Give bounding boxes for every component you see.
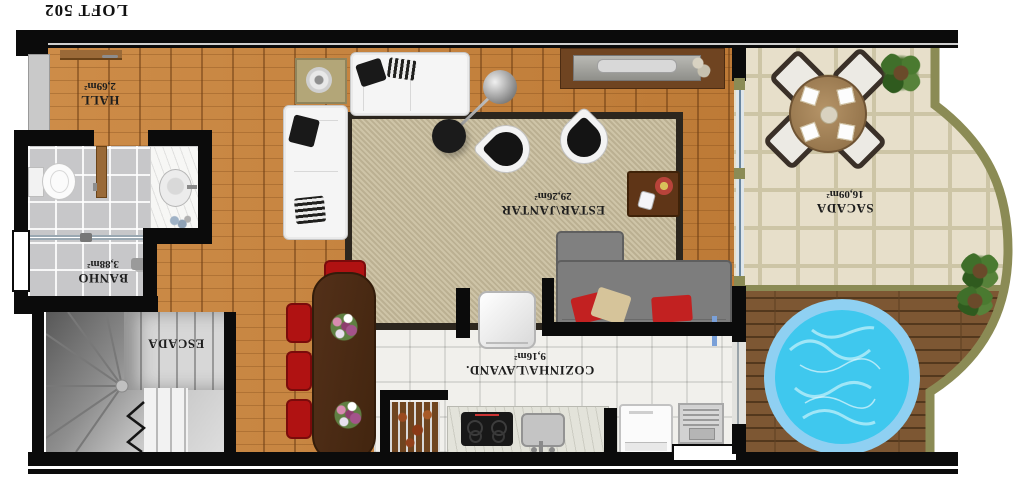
- balcony-round-table: [789, 75, 867, 153]
- stairs-break-line: [128, 402, 144, 452]
- kitchen-wall-stub: [604, 408, 617, 454]
- potted-plant: [960, 252, 1000, 290]
- room-label-hall: HALL 2,69m²: [58, 80, 142, 107]
- shower-glass-handle: [80, 233, 92, 242]
- balcony-wall-stub-bottom: [732, 424, 746, 454]
- entry-door-handle-icon: [102, 55, 118, 58]
- faucet-icon: [187, 185, 197, 189]
- bathroom-wall-top-a: [14, 130, 94, 146]
- jacuzzi-pool: [764, 299, 920, 455]
- dining-chair: [286, 303, 312, 343]
- outer-wall-bottom: [28, 452, 958, 474]
- bathroom-vanity: [150, 146, 200, 234]
- door-frame-post: [734, 168, 745, 179]
- sideboard: [560, 48, 725, 89]
- decor-cup: [637, 190, 656, 210]
- louvered-appliance: [678, 403, 724, 444]
- sliding-glass-door: [736, 81, 744, 286]
- dining-table: [312, 272, 376, 462]
- stairs-winder-lines: [46, 312, 122, 452]
- flower-centerpiece: [331, 398, 365, 432]
- window-left: [12, 230, 30, 292]
- toilet-bowl: [42, 163, 76, 200]
- deck-door-opening: [732, 342, 746, 424]
- room-label-sacada: SACADA 16,09m²: [792, 188, 898, 215]
- outer-wall-left-lower: [32, 310, 44, 452]
- plan-title: LOFT 502: [30, 0, 142, 20]
- grill-wall: [380, 394, 390, 454]
- staircase: [46, 312, 234, 452]
- washing-machine: [619, 404, 673, 457]
- kitchen-wall-stub-left: [456, 288, 470, 338]
- striped-pillow: [387, 57, 418, 81]
- room-label-banho: BANHO 3,88m²: [60, 258, 146, 285]
- grill: [390, 402, 440, 453]
- refrigerator: [478, 291, 536, 349]
- potted-plant: [956, 286, 994, 316]
- flower-centerpiece: [327, 310, 361, 344]
- door-frame-post: [734, 78, 745, 90]
- balcony-wall-stub-mid: [732, 286, 746, 342]
- grill-wall: [380, 390, 448, 400]
- alcove-wall-bottom: [542, 322, 744, 336]
- striped-pillow: [294, 196, 327, 225]
- dining-chair: [286, 351, 312, 391]
- kitchen-sink: [521, 413, 565, 447]
- outer-wall-topleft-stub: [16, 30, 48, 56]
- window-kitchen: [672, 444, 738, 462]
- room-label-escada: ESCADA: [138, 336, 214, 351]
- bathroom-wall-right: [198, 143, 212, 238]
- dining-chair: [286, 399, 312, 439]
- balcony-wall-stub-top: [732, 47, 746, 81]
- stairs-newel: [116, 380, 128, 392]
- cooktop: [461, 412, 513, 446]
- room-label-estar: ESTAR\JANTAR 29,26m²: [470, 190, 636, 217]
- decor-bowl: [306, 67, 332, 93]
- potted-plant: [879, 51, 923, 95]
- bathroom-door: [96, 146, 107, 198]
- floor-plan: LOFT 502 HALL 2,69m² BANHO 3,88m² ESCADA…: [0, 0, 1024, 487]
- stairs-wall-right: [224, 312, 236, 452]
- floor-lamp-base: [483, 70, 517, 104]
- decor-plate: [655, 177, 673, 195]
- room-label-cozinha: COZINHA\LAVAND. 9,16m²: [437, 350, 623, 377]
- bathroom-wall-bottom: [26, 296, 158, 312]
- outer-wall-top: [28, 30, 958, 48]
- decor-glassware: [691, 54, 711, 80]
- vanity-decor: [169, 215, 191, 229]
- floor-lamp-shade: [432, 119, 466, 153]
- red-pillow: [651, 295, 693, 324]
